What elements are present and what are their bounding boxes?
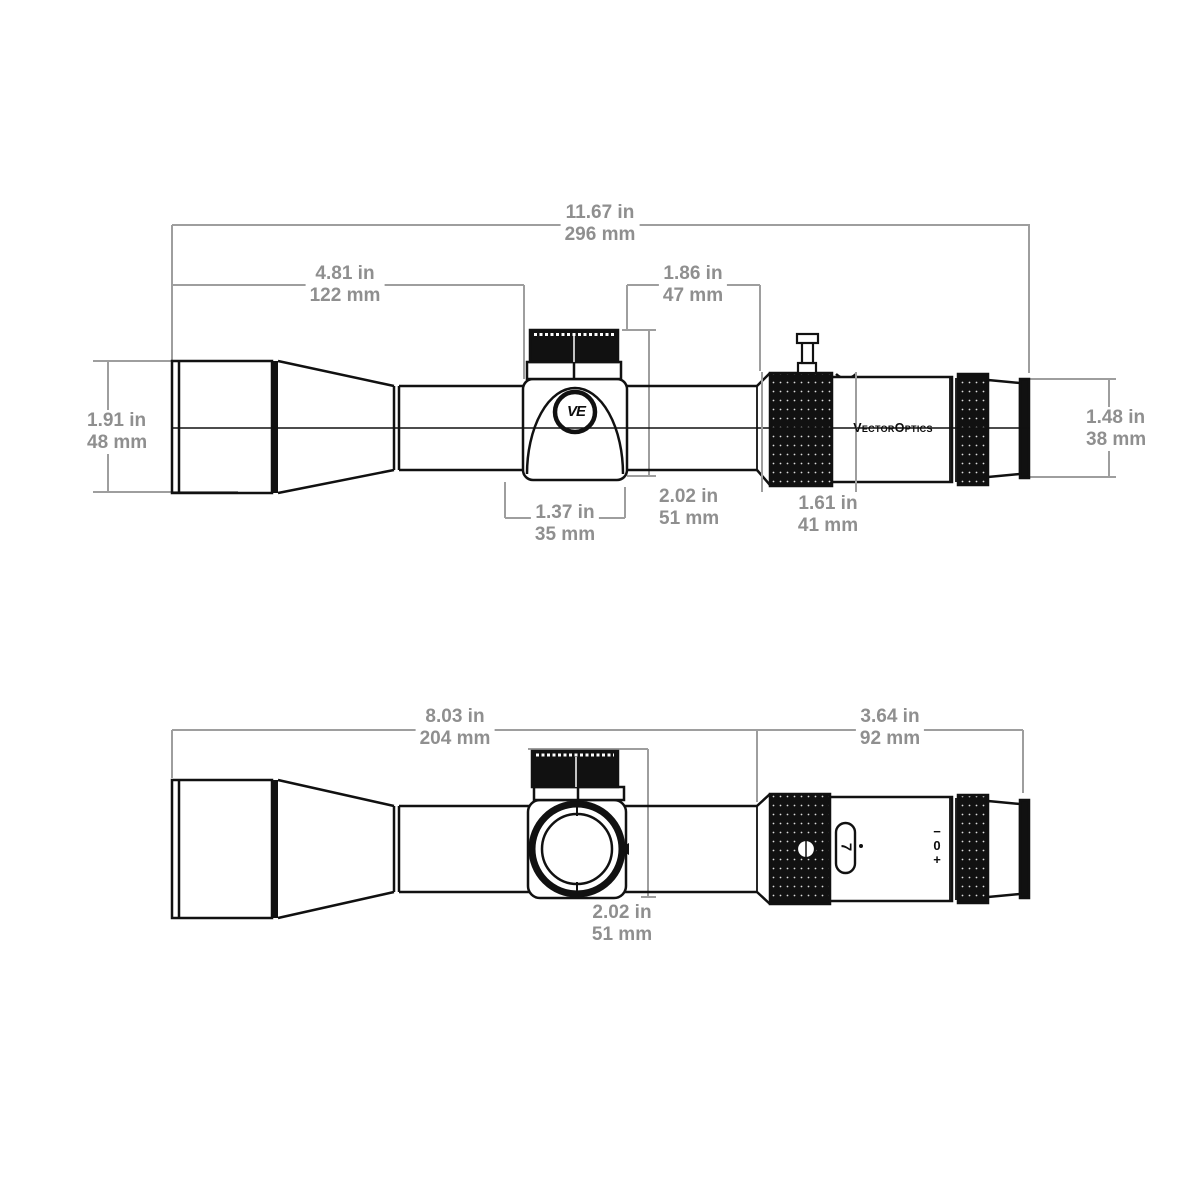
power-ring — [770, 373, 832, 486]
dim-objective-diameter: 1.91 in 48 mm — [83, 410, 151, 454]
throw-lever — [797, 334, 818, 373]
diopter-ring — [958, 374, 988, 485]
dim-overall-length: 11.67 in 296 mm — [561, 202, 640, 246]
logo-monogram: VE — [567, 403, 585, 420]
dim-eyepiece-diameter: 1.48 in 38 mm — [1082, 407, 1150, 451]
diopter-zero: 0 — [933, 839, 940, 853]
brand-text: VectorOptics — [853, 421, 933, 435]
dim-objective-section: 4.81 in 122 mm — [306, 263, 385, 307]
dim-power-ring-section: 1.61 in 41 mm — [794, 493, 862, 537]
dim-mount-tube-length: 8.03 in 204 mm — [416, 706, 495, 750]
plan-view-scope — [172, 751, 1029, 918]
diopter-plus: + — [933, 853, 941, 867]
dim-saddle-width: 1.37 in 35 mm — [531, 502, 599, 546]
drawing-geometry — [0, 0, 1200, 1200]
dim-eyepiece-assembly: 3.64 in 92 mm — [856, 706, 924, 750]
magnification-number: 7 — [838, 843, 855, 851]
dim-turret-height-side: 2.02 in 51 mm — [655, 486, 723, 530]
dim-turret-height-top: 2.02 in 51 mm — [588, 902, 656, 946]
side-view-scope — [172, 330, 1030, 493]
dim-turret-section: 1.86 in 47 mm — [659, 263, 727, 307]
diopter-minus: − — [933, 825, 941, 839]
scope-dimensional-diagram: 11.67 in 296 mm 4.81 in 122 mm 1.86 in 4… — [0, 0, 1200, 1200]
diopter-scale: − 0 + — [933, 825, 941, 867]
